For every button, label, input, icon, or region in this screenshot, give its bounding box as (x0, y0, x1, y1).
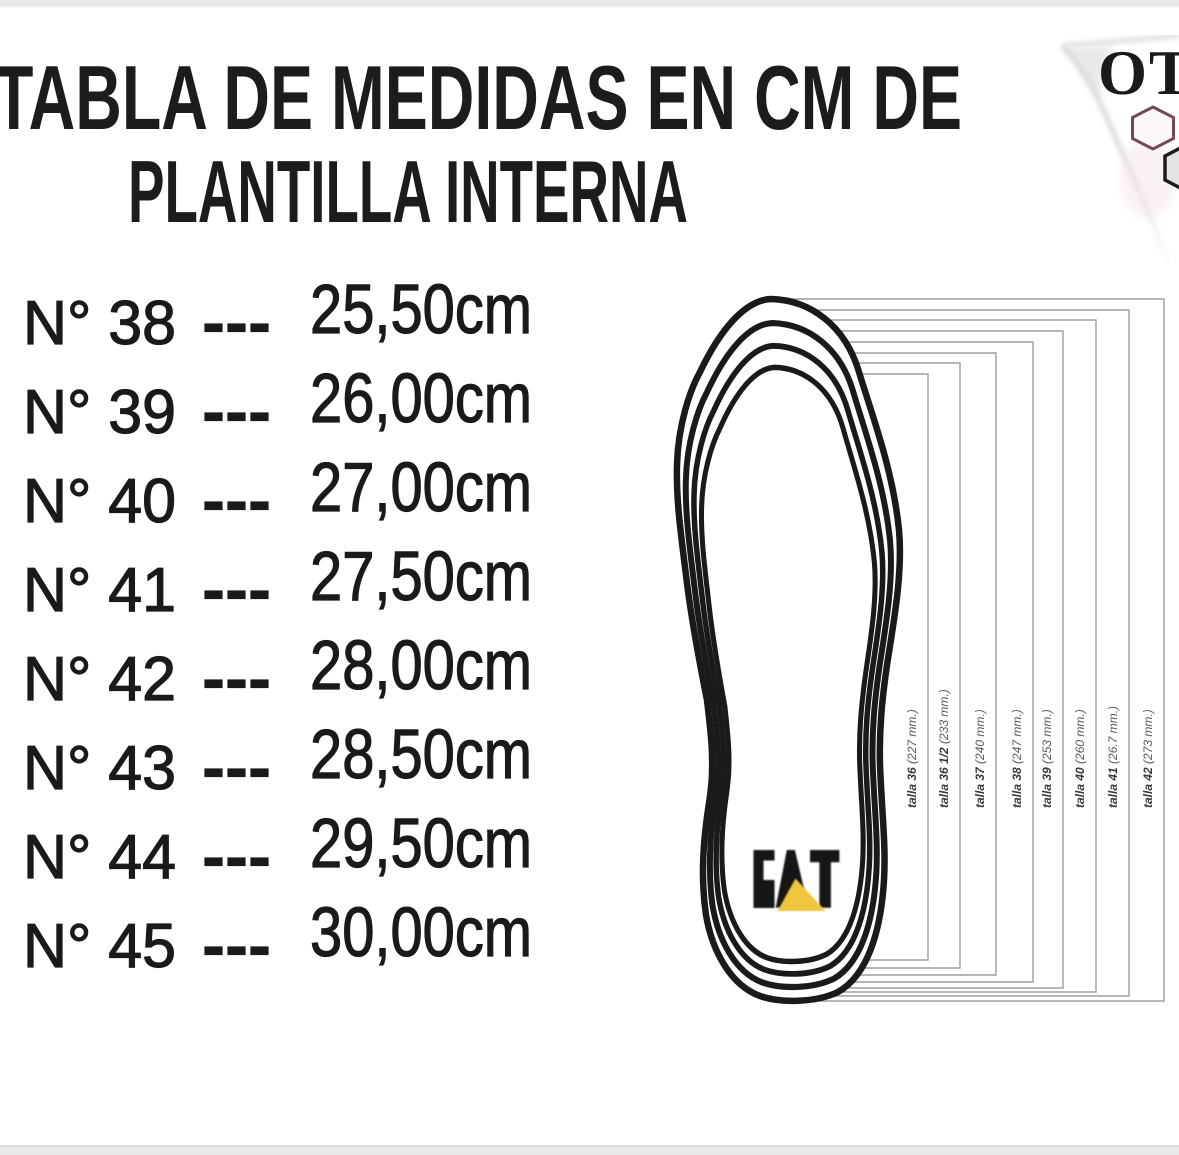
svg-text:talla 36 1/2 (233 mm.): talla 36 1/2 (233 mm.) (937, 689, 951, 808)
svg-text:25,50cm: 25,50cm (310, 270, 532, 348)
svg-text:N° 38: N° 38 (23, 289, 176, 358)
svg-text:30,00cm: 30,00cm (310, 893, 532, 971)
svg-text:26,00cm: 26,00cm (310, 359, 532, 437)
svg-text:talla 41 (26.7 mm.): talla 41 (26.7 mm.) (1106, 706, 1120, 808)
svg-text:N° 43: N° 43 (23, 734, 176, 803)
svg-text:N° 39: N° 39 (23, 378, 176, 447)
svg-text:talla 42 (273 mm.): talla 42 (273 mm.) (1141, 709, 1155, 808)
svg-text:N° 44: N° 44 (23, 823, 176, 892)
svg-text:27,00cm: 27,00cm (310, 448, 532, 526)
svg-text:talla 37 (240 mm.): talla 37 (240 mm.) (973, 709, 987, 808)
svg-text:talla 39 (253 mm.): talla 39 (253 mm.) (1040, 709, 1054, 808)
svg-text:talla 40 (260 mm.): talla 40 (260 mm.) (1073, 709, 1087, 808)
svg-text:N° 45: N° 45 (23, 912, 176, 981)
svg-text:N° 40: N° 40 (23, 467, 176, 536)
svg-text:PLANTILLA INTERNA: PLANTILLA INTERNA (128, 142, 688, 241)
svg-text:TABLA DE MEDIDAS EN CM DE: TABLA DE MEDIDAS EN CM DE (0, 48, 962, 149)
svg-text:29,50cm: 29,50cm (310, 804, 532, 882)
svg-text:N° 41: N° 41 (23, 556, 176, 625)
svg-text:27,50cm: 27,50cm (310, 537, 532, 615)
svg-text:OTE: OTE (1098, 38, 1179, 108)
svg-text:28,00cm: 28,00cm (310, 626, 532, 704)
svg-text:N° 42: N° 42 (23, 645, 176, 714)
svg-text:28,50cm: 28,50cm (310, 715, 532, 793)
svg-text:talla 36 (227 mm.): talla 36 (227 mm.) (905, 709, 919, 808)
svg-text:talla 38 (247 mm.): talla 38 (247 mm.) (1010, 709, 1024, 808)
